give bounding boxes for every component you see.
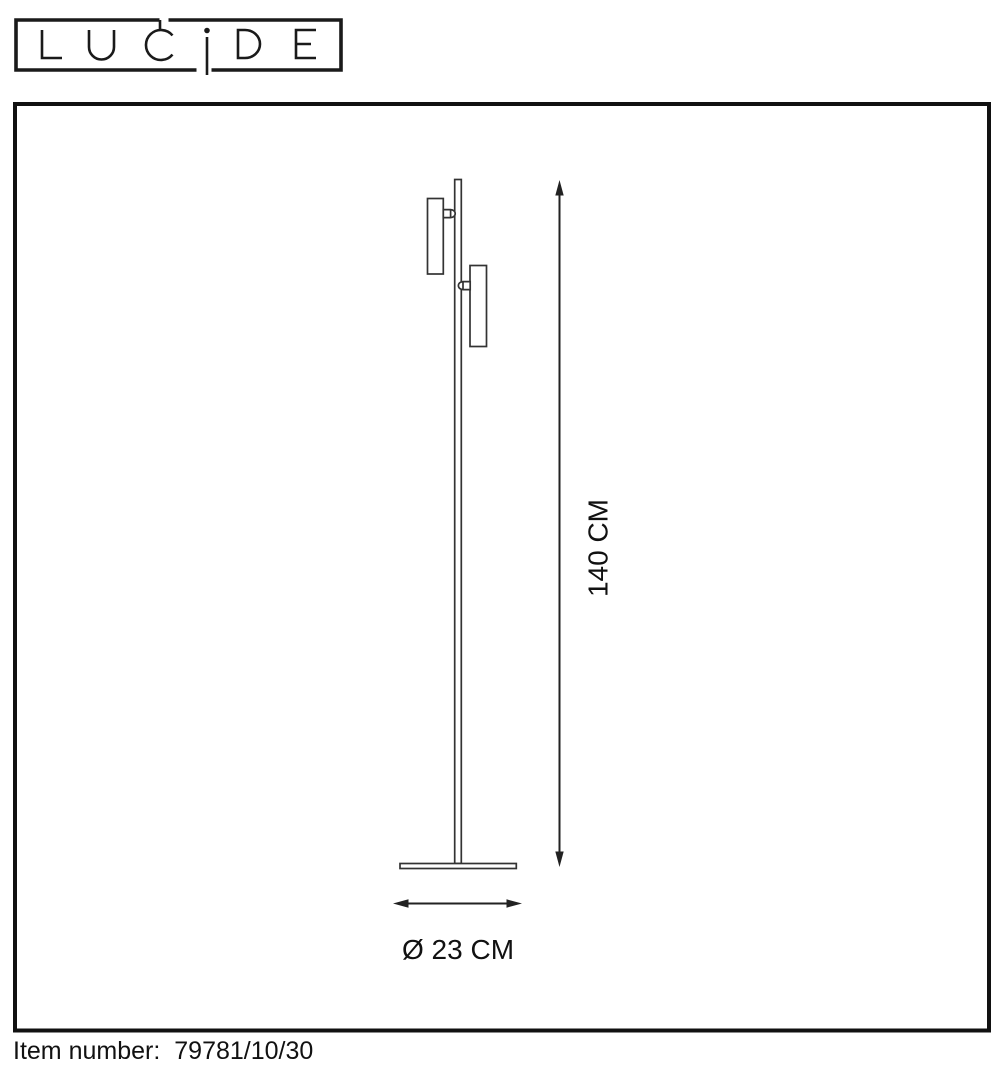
lamp-head-left <box>428 199 444 275</box>
floor-lamp-drawing <box>400 180 516 869</box>
height-arrowhead-up <box>555 180 563 196</box>
lamp-bracket-right <box>458 282 470 290</box>
height-dimension-label: 140 CM <box>583 499 614 597</box>
height-arrowhead-down <box>555 852 563 868</box>
diameter-dimension: Ø 23 CM <box>393 899 522 965</box>
item-number-label: Item number: <box>13 1038 160 1064</box>
logo-letter-e <box>296 30 316 58</box>
diameter-arrowhead-right <box>507 899 523 907</box>
lamp-bracket-left <box>443 210 455 218</box>
logo-letter-d <box>238 30 260 58</box>
item-number: Item number: 79781/10/30 <box>13 1038 313 1064</box>
logo-box <box>16 20 341 70</box>
spec-sheet-page: LUCIDE <box>0 0 1003 1071</box>
logo-letter-l <box>42 30 62 58</box>
logo-letter-i-dot <box>204 28 210 34</box>
logo-letter-u <box>89 30 114 60</box>
lamp-base <box>400 864 516 869</box>
dimension-drawing: 140 CM Ø 23 CM <box>0 0 1003 1071</box>
diameter-dimension-label: Ø 23 CM <box>402 934 514 965</box>
item-number-value: 79781/10/30 <box>174 1038 313 1064</box>
height-dimension: 140 CM <box>555 180 613 867</box>
diameter-arrowhead-left <box>393 899 409 907</box>
lucide-logo <box>16 20 341 75</box>
lamp-head-right <box>470 266 487 347</box>
drawing-frame <box>15 104 989 1031</box>
logo-letter-c <box>146 30 173 60</box>
